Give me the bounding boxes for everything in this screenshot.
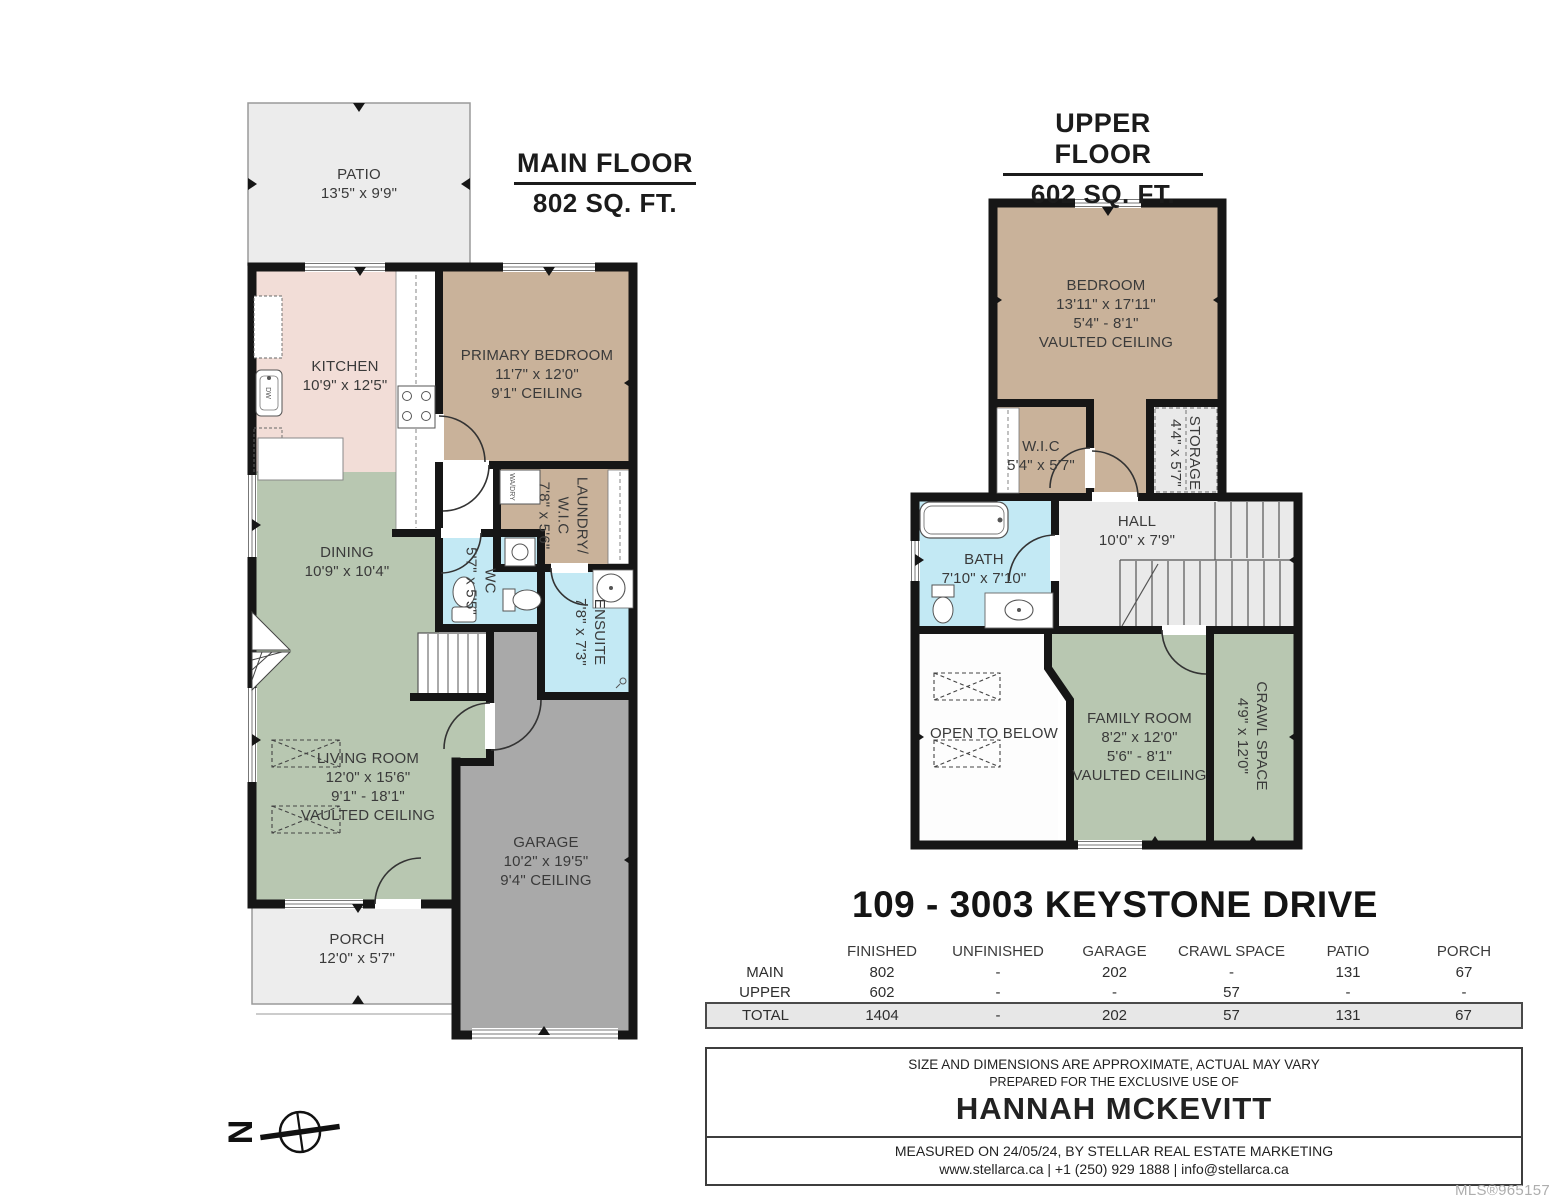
- room-name: PORCH: [277, 930, 437, 949]
- area-table-row-upper: UPPER 602 - - 57 - -: [706, 982, 1522, 1003]
- cell: 202: [1056, 962, 1173, 982]
- cell: -: [1173, 962, 1290, 982]
- room-name: LIVING ROOM: [260, 749, 476, 768]
- room-name: PRIMARY BEDROOM: [432, 346, 642, 365]
- mls-number: MLS®965157: [1455, 1182, 1550, 1199]
- room-dims: 11'7" x 12'0": [432, 365, 642, 384]
- room-ceiling: 9'4" CEILING: [456, 871, 636, 890]
- room-label-wc: WC 5'7" x 5'5": [462, 534, 500, 629]
- room-dims: 10'0" x 7'9": [1067, 531, 1207, 550]
- cell: 802: [824, 962, 940, 982]
- contact-text: www.stellarca.ca | +1 (250) 929 1888 | i…: [717, 1161, 1511, 1177]
- row-label: MAIN: [706, 962, 824, 982]
- room-dims: 4'4" x 5'7": [1166, 402, 1185, 504]
- cell: 202: [1056, 1003, 1173, 1028]
- col-header-crawl-space: CRAWL SPACE: [1173, 940, 1290, 962]
- col-header-porch: PORCH: [1406, 940, 1522, 962]
- room-name: FAMILY ROOM: [1042, 709, 1237, 728]
- room-ceiling: 9'1" CEILING: [432, 384, 642, 403]
- corner-cell: [706, 940, 824, 962]
- cell: -: [940, 982, 1056, 1003]
- prepared-for-text: PREPARED FOR THE EXCLUSIVE USE OF: [717, 1075, 1511, 1089]
- room-label-crawl-space: CRAWL SPACE 4'9" x 12'0": [1233, 670, 1271, 802]
- room-ceiling: VAULTED CEILING: [260, 806, 476, 825]
- cell: 67: [1406, 1003, 1522, 1028]
- room-label-bath: BATH 7'10" x 7'10": [914, 550, 1054, 588]
- cell: 57: [1173, 982, 1290, 1003]
- disclaimer-text: SIZE AND DIMENSIONS ARE APPROXIMATE, ACT…: [717, 1057, 1511, 1072]
- room-name: BATH: [914, 550, 1054, 569]
- room-name: ENSUITE: [590, 576, 609, 688]
- room-label-patio: PATIO 13'5" x 9'9": [279, 165, 439, 203]
- room-label-bedroom: BEDROOM 13'11" x 17'11" 5'4" - 8'1" VAUL…: [996, 276, 1216, 352]
- room-dims: 12'0" x 5'7": [277, 949, 437, 968]
- room-dims: 10'9" x 12'5": [265, 376, 425, 395]
- cell: 57: [1173, 1003, 1290, 1028]
- main-floor-title: MAIN FLOOR 802 SQ. FT.: [505, 148, 705, 219]
- cell: 602: [824, 982, 940, 1003]
- area-table-row-main: MAIN 802 - 202 - 131 67: [706, 962, 1522, 982]
- room-dims: 5'7" x 5'5": [462, 534, 481, 629]
- cell: -: [1406, 982, 1522, 1003]
- room-dims: 12'0" x 15'6": [260, 768, 476, 787]
- room-label-dining: DINING 10'9" x 10'4": [267, 543, 427, 581]
- row-label: UPPER: [706, 982, 824, 1003]
- room-name2: W.I.C: [554, 458, 573, 574]
- room-ceiling: VAULTED CEILING: [996, 333, 1216, 352]
- room-label-living-room: LIVING ROOM 12'0" x 15'6" 9'1" - 18'1" V…: [260, 749, 476, 825]
- room-dims: 10'9" x 10'4": [267, 562, 427, 581]
- room-label-kitchen: KITCHEN 10'9" x 12'5": [265, 357, 425, 395]
- disclaimer-box: SIZE AND DIMENSIONS ARE APPROXIMATE, ACT…: [705, 1047, 1523, 1186]
- upper-floor-sqft: 602 SQ. FT.: [1003, 179, 1203, 210]
- room-name: LAUNDRY/: [573, 458, 592, 574]
- room-dims: 4'9" x 12'0": [1233, 670, 1252, 802]
- room-name: GARAGE: [456, 833, 636, 852]
- cell: 131: [1290, 962, 1406, 982]
- disclaimer-bottom: MEASURED ON 24/05/24, BY STELLAR REAL ES…: [707, 1136, 1521, 1184]
- room-dims: 7'8" x 5'6": [535, 458, 554, 574]
- row-label: TOTAL: [706, 1003, 824, 1028]
- room-dims: 13'5" x 9'9": [279, 184, 439, 203]
- col-header-garage: GARAGE: [1056, 940, 1173, 962]
- upper-floor-title-text: UPPER FLOOR: [1003, 108, 1203, 176]
- room-dims: 10'2" x 19'5": [456, 852, 636, 871]
- room-label-porch: PORCH 12'0" x 5'7": [277, 930, 437, 968]
- room-height-range: 5'6" - 8'1": [1042, 747, 1237, 766]
- cell: 1404: [824, 1003, 940, 1028]
- col-header-patio: PATIO: [1290, 940, 1406, 962]
- room-name: DINING: [267, 543, 427, 562]
- cell: 67: [1406, 962, 1522, 982]
- cell: -: [1056, 982, 1173, 1003]
- compass: N: [222, 1107, 342, 1158]
- main-stairs: [418, 633, 487, 695]
- upper-floor-title: UPPER FLOOR 602 SQ. FT.: [1003, 108, 1203, 210]
- room-name: CRAWL SPACE: [1252, 670, 1271, 802]
- area-table-row-total: TOTAL 1404 - 202 57 131 67: [706, 1003, 1522, 1028]
- room-name: KITCHEN: [265, 357, 425, 376]
- room-label-laundry-wic: LAUNDRY/ W.I.C 7'8" x 5'6": [535, 458, 592, 574]
- area-table: FINISHED UNFINISHED GARAGE CRAWL SPACE P…: [705, 940, 1523, 1029]
- room-dims: 7'10" x 7'10": [914, 569, 1054, 588]
- room-label-ensuite: ENSUITE 7'8" x 7'3": [571, 576, 609, 688]
- room-height-range: 5'4" - 8'1": [996, 314, 1216, 333]
- room-name: HALL: [1067, 512, 1207, 531]
- room-name: BEDROOM: [996, 276, 1216, 295]
- cell: -: [1290, 982, 1406, 1003]
- room-label-wic-upper: W.I.C 5'4" x 5'7": [987, 437, 1095, 475]
- room-ceiling: VAULTED CEILING: [1042, 766, 1237, 785]
- client-name: HANNAH MCKEVITT: [717, 1091, 1511, 1127]
- room-name: PATIO: [279, 165, 439, 184]
- room-dims: 7'8" x 7'3": [571, 576, 590, 688]
- floorplan-page: DW WA/DRY: [0, 0, 1552, 1200]
- col-header-finished: FINISHED: [824, 940, 940, 962]
- room-dims: 13'11" x 17'11": [996, 295, 1216, 314]
- room-label-family-room: FAMILY ROOM 8'2" x 12'0" 5'6" - 8'1" VAU…: [1042, 709, 1237, 785]
- room-name: W.I.C: [987, 437, 1095, 456]
- col-header-unfinished: UNFINISHED: [940, 940, 1056, 962]
- room-label-storage: STORAGE 4'4" x 5'7": [1166, 402, 1204, 504]
- washer-label: WA/DRY: [508, 473, 515, 501]
- compass-north-letter: N: [222, 1120, 260, 1145]
- room-dims: 5'4" x 5'7": [987, 456, 1095, 475]
- room-dims: 8'2" x 12'0": [1042, 728, 1237, 747]
- room-name: STORAGE: [1185, 402, 1204, 504]
- main-floor-sqft: 802 SQ. FT.: [505, 188, 705, 219]
- property-address: 109 - 3003 KEYSTONE DRIVE: [780, 884, 1450, 926]
- cell: -: [940, 1003, 1056, 1028]
- measured-text: MEASURED ON 24/05/24, BY STELLAR REAL ES…: [717, 1143, 1511, 1159]
- cell: 131: [1290, 1003, 1406, 1028]
- room-name: WC: [481, 534, 500, 629]
- area-table-header-row: FINISHED UNFINISHED GARAGE CRAWL SPACE P…: [706, 940, 1522, 962]
- room-label-hall: HALL 10'0" x 7'9": [1067, 512, 1207, 550]
- disclaimer-top: SIZE AND DIMENSIONS ARE APPROXIMATE, ACT…: [707, 1049, 1521, 1136]
- main-floor-title-text: MAIN FLOOR: [514, 148, 696, 185]
- room-label-primary-bedroom: PRIMARY BEDROOM 11'7" x 12'0" 9'1" CEILI…: [432, 346, 642, 403]
- cell: -: [940, 962, 1056, 982]
- room-height-range: 9'1" - 18'1": [260, 787, 476, 806]
- room-label-garage: GARAGE 10'2" x 19'5" 9'4" CEILING: [456, 833, 636, 890]
